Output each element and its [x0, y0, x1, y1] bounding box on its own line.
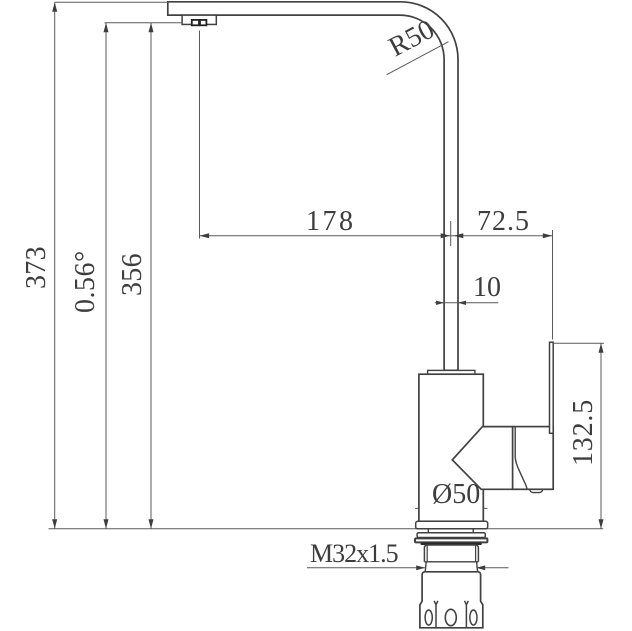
svg-text:0.56°: 0.56° — [70, 250, 101, 313]
svg-text:Ø50: Ø50 — [432, 479, 480, 510]
svg-text:373: 373 — [21, 246, 52, 289]
svg-text:132.5: 132.5 — [568, 399, 599, 466]
svg-text:10: 10 — [473, 272, 501, 303]
svg-text:M32x1.5: M32x1.5 — [310, 539, 398, 568]
svg-text:178: 178 — [306, 206, 356, 237]
svg-text:72.5: 72.5 — [477, 206, 530, 237]
svg-text:356: 356 — [117, 253, 148, 296]
